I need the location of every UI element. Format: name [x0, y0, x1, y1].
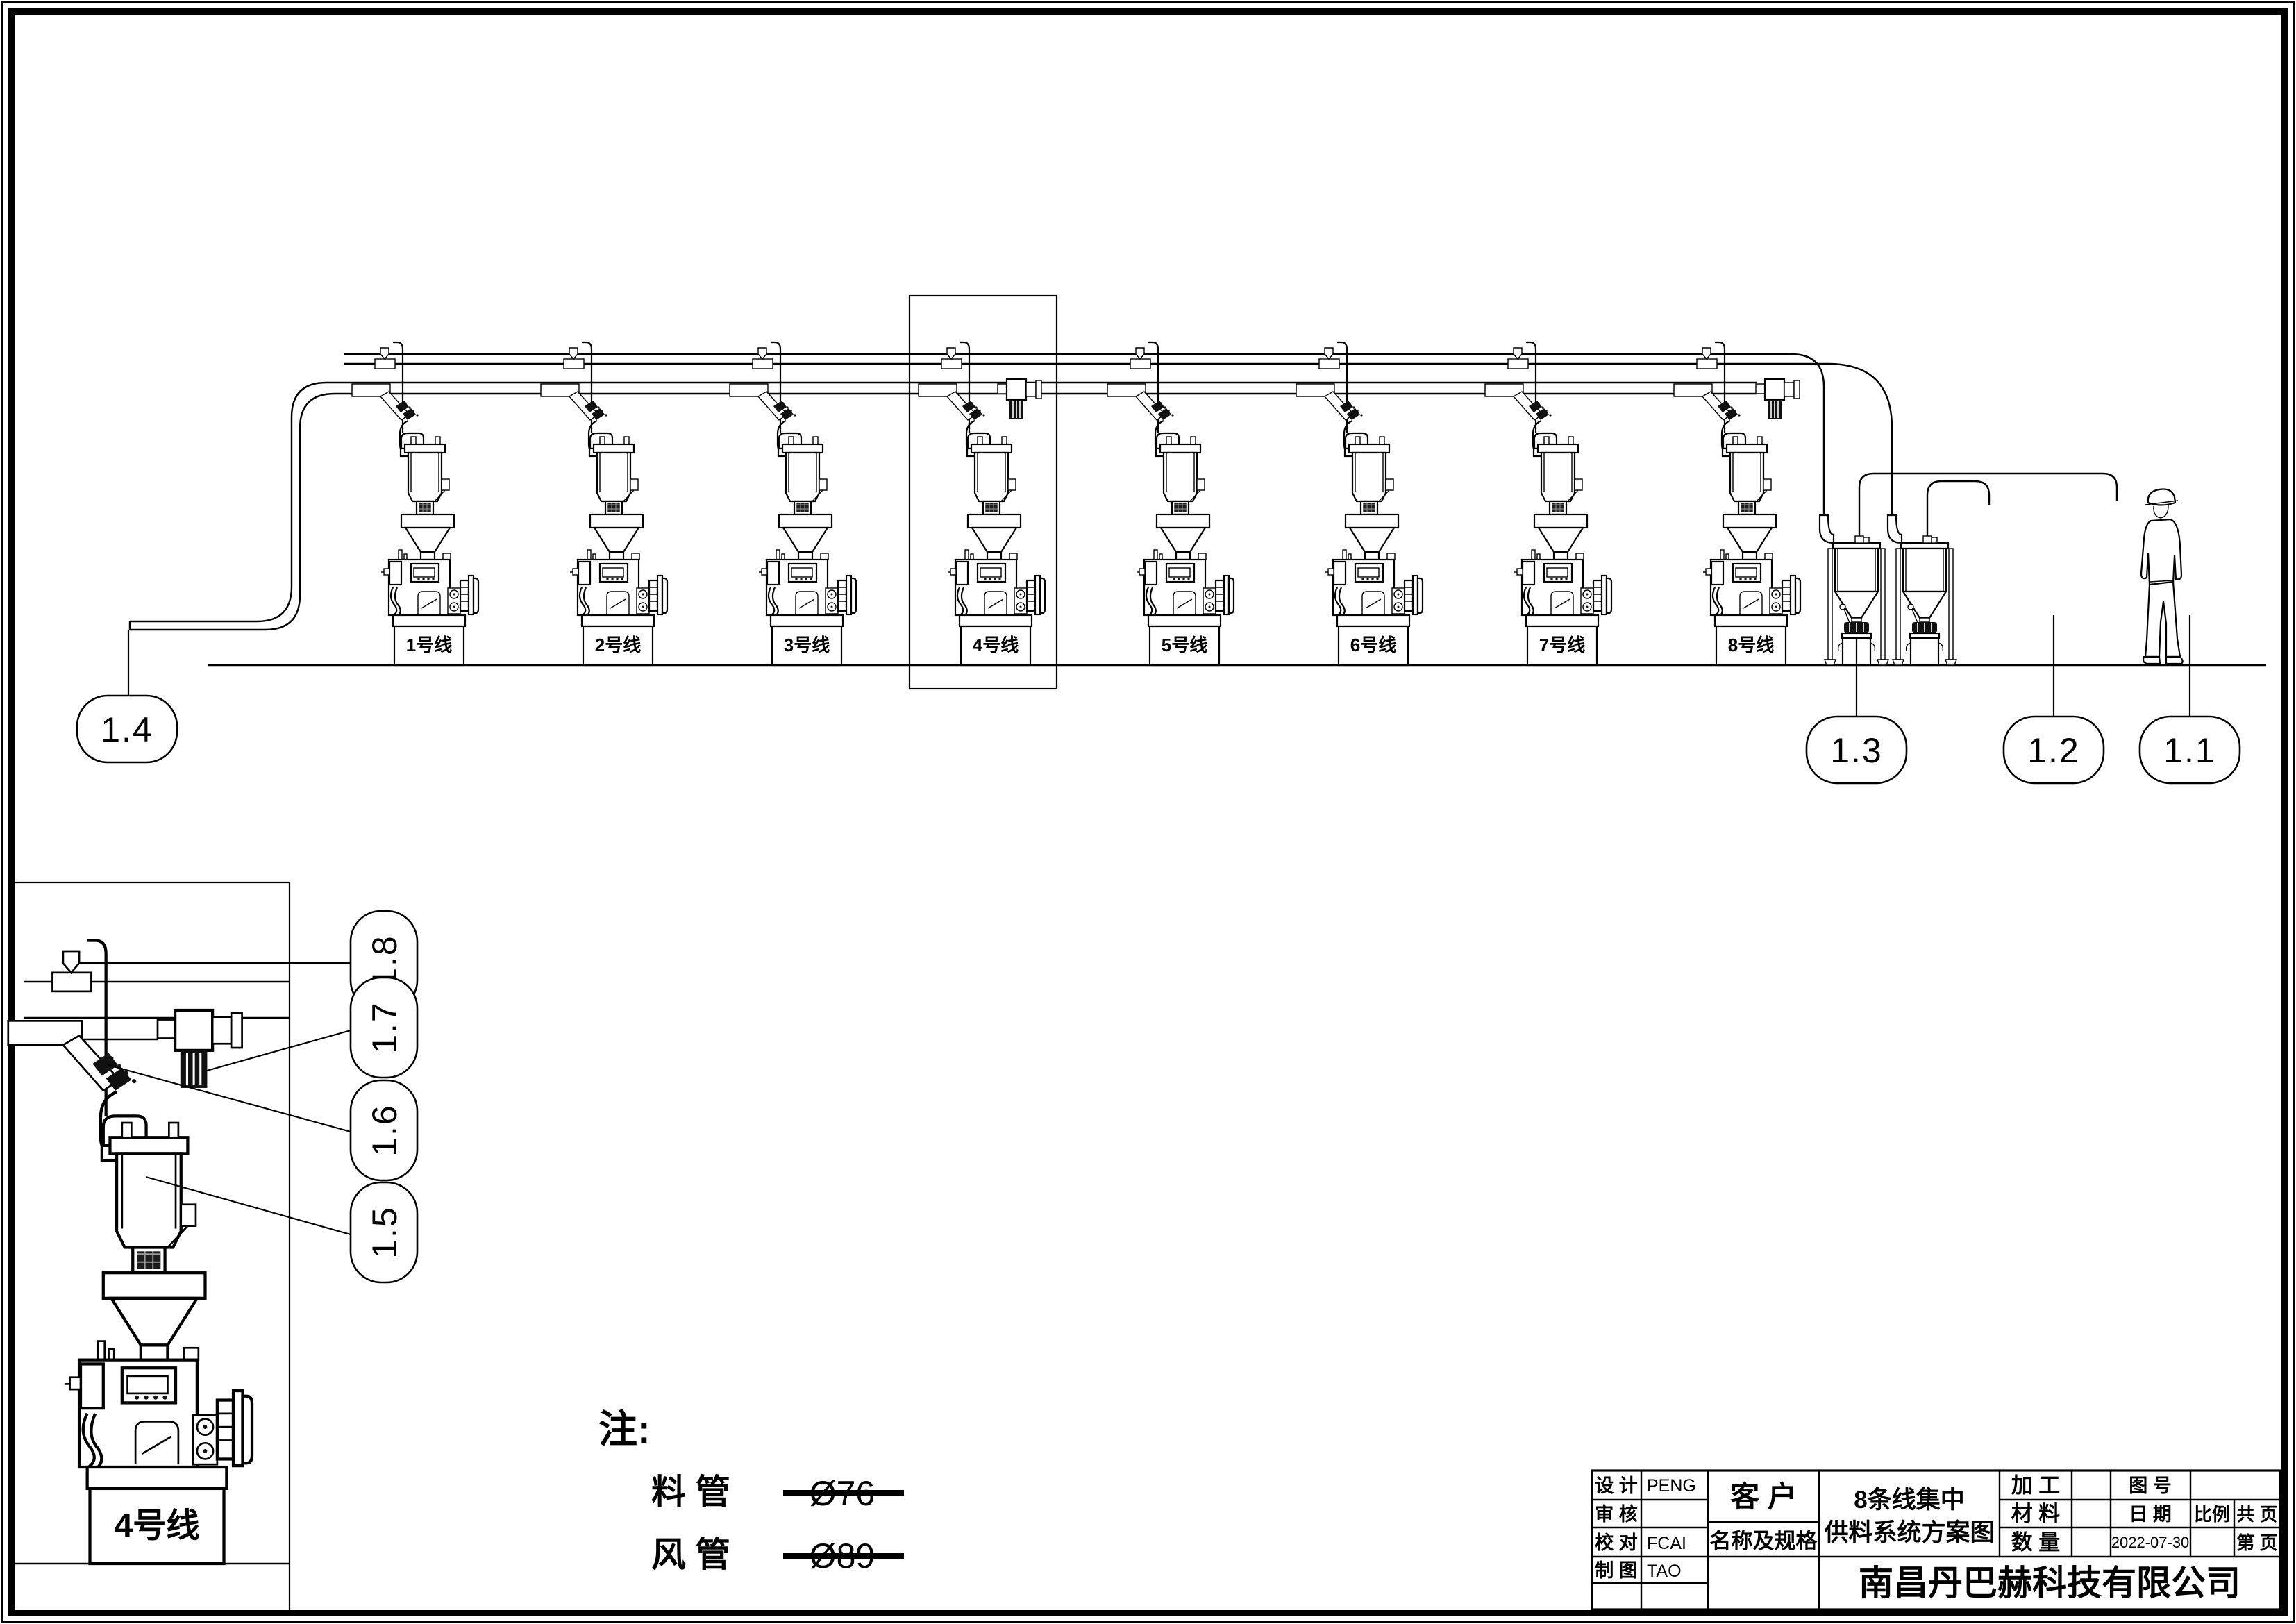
- tb-spec-label: 名称及规格: [1710, 1529, 1818, 1553]
- note-material-pipe: 料 管: [651, 1473, 730, 1512]
- tb-process-label: 加 工: [2011, 1473, 2061, 1498]
- note-material-spec: Ø76: [810, 1474, 875, 1513]
- machine-8-label: 8号线: [1728, 635, 1774, 655]
- notes-heading: 注:: [598, 1407, 651, 1451]
- note-air-pipe: 风 管: [651, 1535, 730, 1574]
- tb-page-label: 第 页: [2236, 1532, 2277, 1553]
- machine-5-label: 5号线: [1162, 635, 1207, 655]
- balloon-1-4-label: 1.4: [101, 710, 153, 749]
- tb-check-value: FCAI: [1647, 1534, 1686, 1553]
- note-air-spec: Ø89: [810, 1537, 875, 1575]
- balloon-1-3-label: 1.3: [1830, 731, 1883, 770]
- tb-customer-label: 客 户: [1730, 1480, 1797, 1513]
- balloon-1-7-label: 1.7: [365, 1001, 404, 1054]
- tb-review-label: 审 核: [1595, 1503, 1638, 1525]
- tb-date-value: 2022-07-30: [2111, 1534, 2190, 1551]
- tb-check-label: 校 对: [1595, 1532, 1638, 1553]
- tb-design-value: PENG: [1647, 1476, 1696, 1496]
- balloon-1-2-label: 1.2: [2027, 731, 2080, 770]
- tb-date-label: 日 期: [2129, 1504, 2172, 1525]
- balloon-1-1-label: 1.1: [2163, 731, 2216, 770]
- torso: [2141, 519, 2181, 587]
- machine-6-label: 6号线: [1350, 635, 1396, 655]
- tb-quantity-label: 数 量: [2011, 1530, 2061, 1555]
- tb-title-line1: 8条线集中: [1854, 1487, 1964, 1514]
- tb-totalpages-label: 共 页: [2236, 1504, 2277, 1525]
- tb-design-label: 设 计: [1595, 1475, 1638, 1496]
- machine-1-label: 1号线: [406, 635, 452, 655]
- tb-company: 南昌丹巴赫科技有限公司: [1859, 1564, 2240, 1602]
- tb-material-label: 材 料: [2011, 1502, 2061, 1526]
- machine-3-label: 3号线: [784, 635, 830, 655]
- tb-draft-value: TAO: [1647, 1562, 1682, 1581]
- tb-draft-label: 制 图: [1595, 1560, 1638, 1581]
- tb-drawingno-label: 图 号: [2129, 1475, 2172, 1496]
- cad-canvas: 1号线2号线3号线4号线5号线6号线7号线8号线 1.4 1.3 1.2 1.1: [0, 0, 2296, 1624]
- balloon-1-6-label: 1.6: [365, 1104, 404, 1157]
- detail-machine-label: 4号线: [114, 1507, 199, 1544]
- machine-2-label: 2号线: [595, 635, 641, 655]
- tb-title-line2: 供料系统方案图: [1824, 1519, 1994, 1546]
- machine-4-label: 4号线: [973, 635, 1019, 655]
- sheet-trim-border: [2, 2, 2294, 1622]
- drawing-sheet: 1号线2号线3号线4号线5号线6号线7号线8号线 1.4 1.3 1.2 1.1: [0, 0, 2296, 1624]
- balloon-1-5-label: 1.5: [365, 1206, 404, 1259]
- tb-scale-label: 比例: [2194, 1504, 2230, 1525]
- machine-7-label: 7号线: [1539, 635, 1585, 655]
